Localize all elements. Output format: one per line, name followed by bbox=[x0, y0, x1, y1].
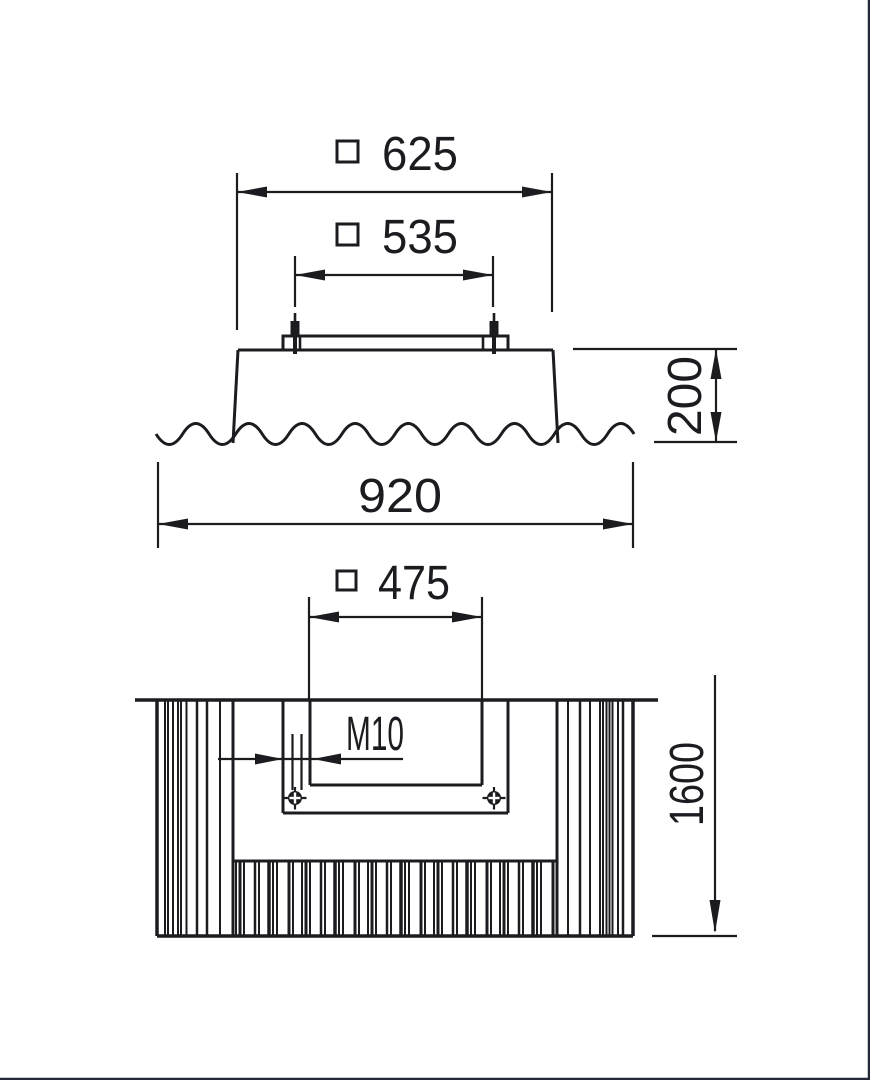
arrowhead-icon bbox=[711, 412, 722, 442]
arrowhead-icon bbox=[255, 754, 283, 765]
arrowhead-icon bbox=[711, 349, 722, 379]
arrowhead-icon bbox=[452, 612, 482, 623]
arrowhead-icon bbox=[710, 900, 721, 933]
base-curb bbox=[156, 350, 634, 445]
drawing-page: 625 535 bbox=[0, 0, 870, 1080]
anchor-bolt-symbol bbox=[284, 787, 307, 810]
dimension-text: 200 bbox=[659, 356, 712, 436]
dimension-text: 1600 bbox=[661, 742, 714, 826]
arrowhead-icon bbox=[522, 187, 552, 198]
plan-view: 475 bbox=[135, 557, 737, 936]
arrowhead-icon bbox=[237, 187, 267, 198]
dimension-text: 625 bbox=[382, 128, 458, 181]
anchor-stud bbox=[291, 313, 300, 354]
hatch-bottom-band bbox=[236, 861, 553, 936]
elevation-view: 625 535 bbox=[156, 128, 737, 548]
hatch-right-band bbox=[557, 700, 633, 936]
arrowhead-icon bbox=[158, 519, 188, 530]
hatch-left-band bbox=[157, 700, 233, 936]
square-symbol-icon bbox=[337, 224, 358, 245]
arrowhead-icon bbox=[295, 270, 325, 281]
dimension-text: 535 bbox=[382, 211, 458, 264]
anchor-stud bbox=[490, 313, 499, 354]
dimension-475: 475 bbox=[309, 557, 482, 699]
dimension-920: 920 bbox=[158, 462, 633, 548]
square-symbol-icon bbox=[337, 141, 358, 162]
technical-drawing: 625 535 bbox=[0, 0, 870, 1080]
dimension-text: 475 bbox=[378, 557, 450, 610]
dimension-535: 535 bbox=[295, 211, 493, 307]
corrugated-roof-line bbox=[156, 424, 634, 445]
arrowhead-icon bbox=[463, 270, 493, 281]
thread-callout-text: M10 bbox=[346, 708, 404, 761]
arrowhead-icon bbox=[309, 612, 339, 623]
curb-left-edge bbox=[233, 350, 238, 443]
anchor-bolt-symbol bbox=[483, 787, 506, 810]
arrowhead-icon bbox=[313, 754, 341, 765]
mounting-plate bbox=[283, 313, 508, 354]
dimension-200: 200 bbox=[573, 349, 737, 442]
arrowhead-icon bbox=[603, 519, 633, 530]
dimension-text: 920 bbox=[358, 470, 442, 523]
plate-outline bbox=[283, 336, 508, 350]
dimension-1600: 1600 bbox=[652, 675, 737, 936]
square-symbol-icon bbox=[337, 571, 356, 590]
